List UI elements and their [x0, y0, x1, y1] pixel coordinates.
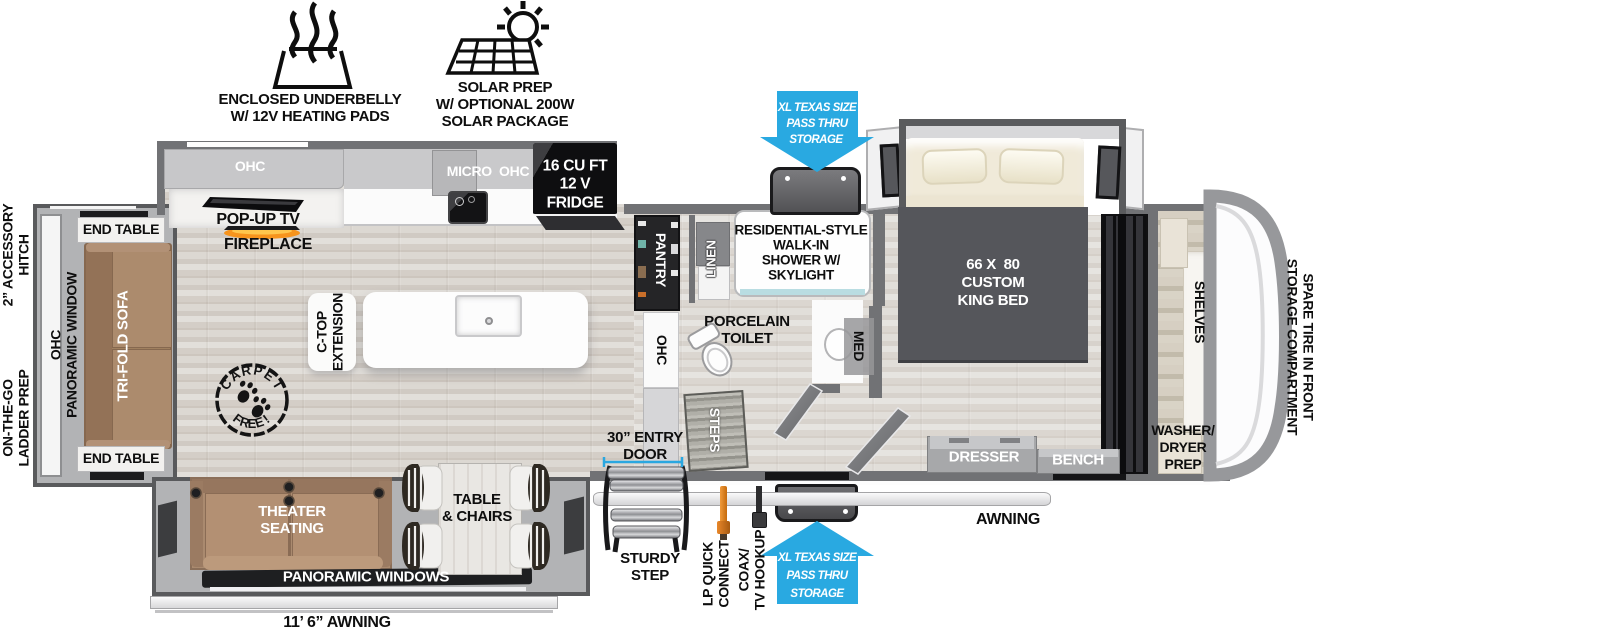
svg-text:STORAGE: STORAGE [789, 134, 843, 146]
svg-text:XL TEXAS SIZE: XL TEXAS SIZE [777, 552, 857, 564]
svg-text:XL TEXAS SIZE: XL TEXAS SIZE [777, 102, 857, 114]
svg-text:STORAGE: STORAGE [790, 588, 844, 600]
svg-text:T: T [269, 377, 286, 392]
svg-text:PASS THRU: PASS THRU [786, 118, 848, 130]
svg-text:PASS THRU: PASS THRU [786, 570, 848, 582]
